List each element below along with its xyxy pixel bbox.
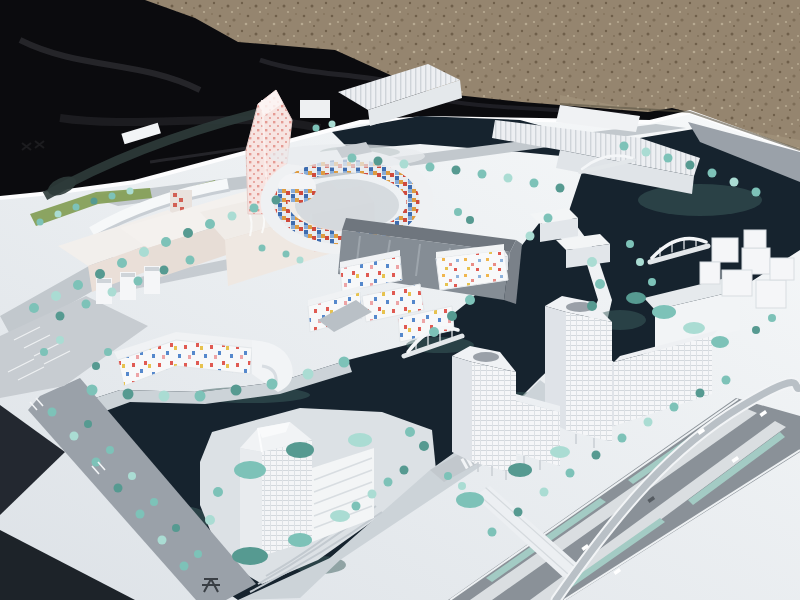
photo-architectural-model [0,0,800,600]
